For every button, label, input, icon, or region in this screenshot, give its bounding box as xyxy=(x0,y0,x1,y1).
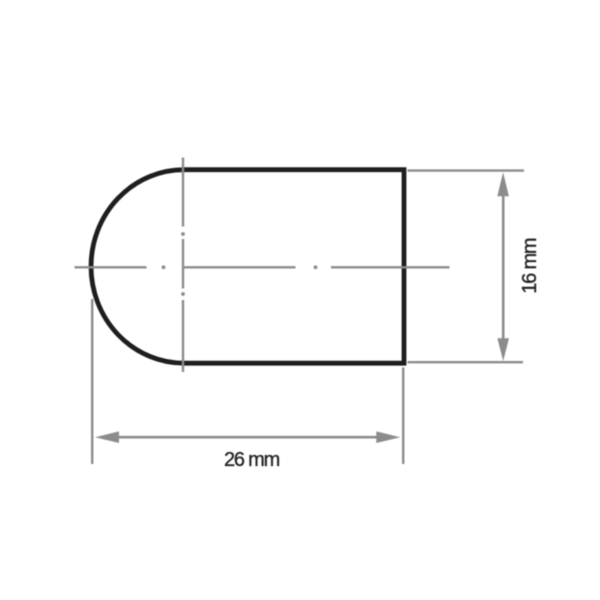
svg-text:26 mm: 26 mm xyxy=(224,449,280,471)
svg-text:16 mm: 16 mm xyxy=(519,238,541,294)
